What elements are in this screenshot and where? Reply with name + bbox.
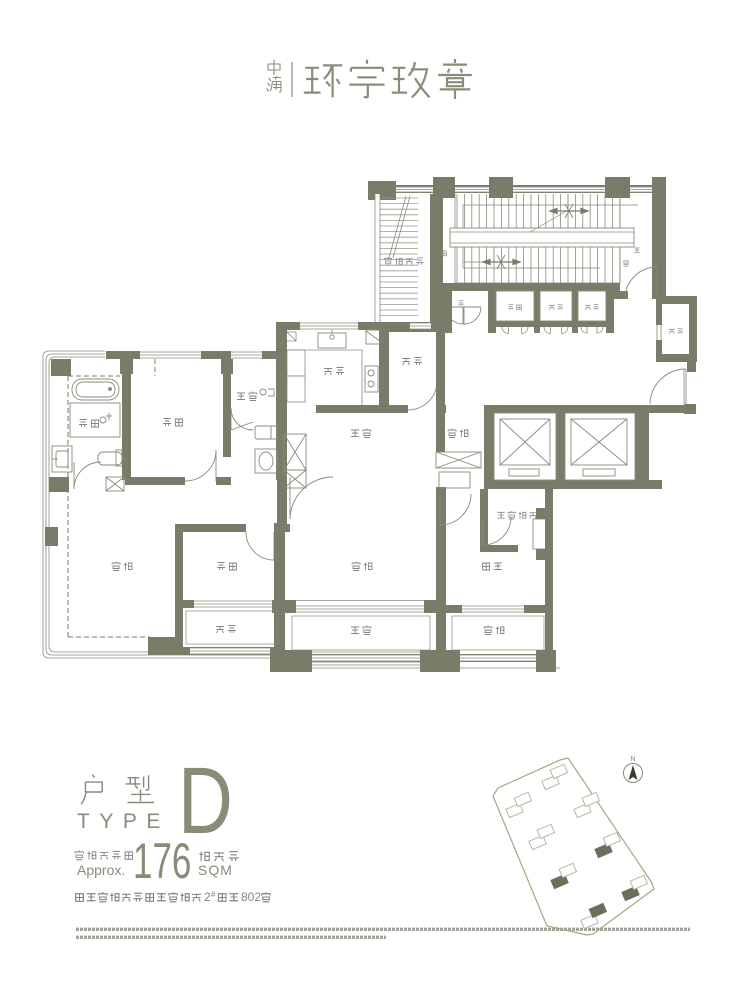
svg-text:Approx.: Approx. [77,862,125,878]
svg-text:176: 176 [133,834,191,890]
svg-text:N: N [631,756,636,763]
svg-text:2: 2 [204,890,211,904]
svg-text:SQM: SQM [198,862,233,878]
svg-text:TYPE: TYPE [77,810,170,833]
svg-text:802: 802 [241,890,261,904]
svg-text:#: # [211,890,216,899]
